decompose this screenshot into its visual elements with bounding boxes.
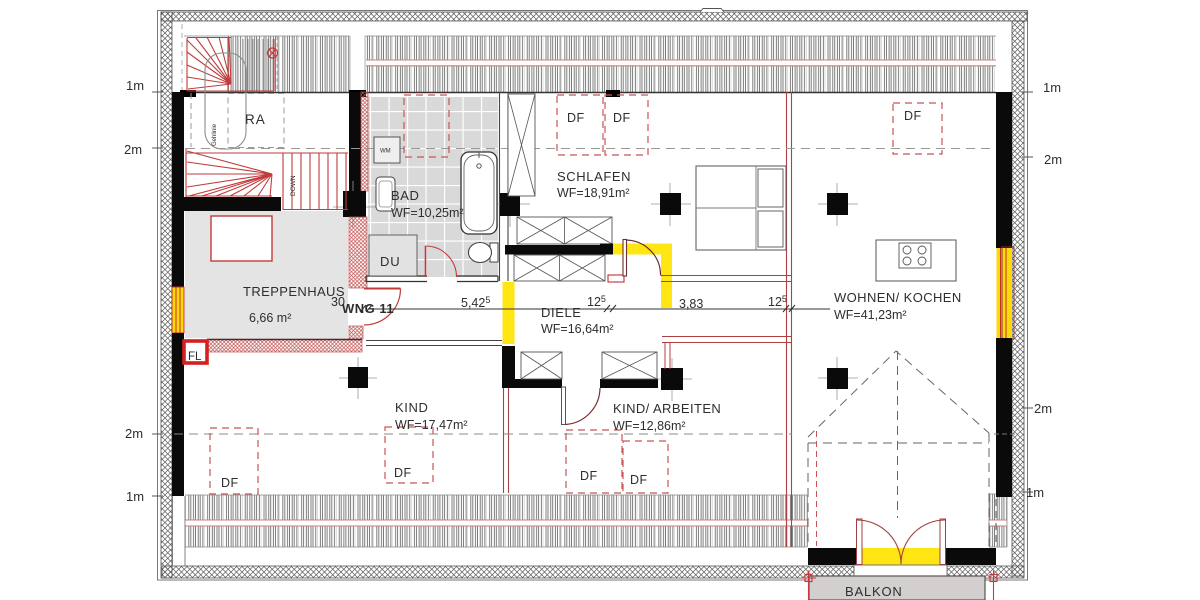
svg-text:DOWN: DOWN <box>290 175 297 196</box>
svg-text:WF=10,25m²: WF=10,25m² <box>391 206 464 220</box>
svg-text:KIND/ ARBEITEN: KIND/ ARBEITEN <box>613 401 721 416</box>
svg-text:WF=12,86m²: WF=12,86m² <box>613 419 686 433</box>
svg-text:DF: DF <box>613 111 631 125</box>
svg-text:1m: 1m <box>126 489 144 504</box>
svg-text:6,66 m²: 6,66 m² <box>249 311 291 325</box>
svg-text:2m: 2m <box>1044 152 1062 167</box>
svg-text:1m: 1m <box>1043 80 1061 95</box>
svg-text:DIELE: DIELE <box>541 305 582 320</box>
svg-text:WM: WM <box>380 149 391 155</box>
svg-text:1m: 1m <box>126 78 144 93</box>
svg-text:2m: 2m <box>124 142 142 157</box>
svg-text:WF=16,64m²: WF=16,64m² <box>541 322 614 336</box>
svg-text:WF=17,47m²: WF=17,47m² <box>395 418 468 432</box>
svg-text:DF: DF <box>221 476 239 490</box>
svg-text:BALKON: BALKON <box>845 584 903 599</box>
svg-text:2m: 2m <box>1034 401 1052 416</box>
svg-text:KIND: KIND <box>395 400 428 415</box>
svg-text:Gehlinie: Gehlinie <box>212 123 218 146</box>
svg-text:WF=18,91m²: WF=18,91m² <box>557 186 630 200</box>
svg-text:DF: DF <box>904 109 922 123</box>
svg-text:DU: DU <box>380 254 400 269</box>
svg-text:1m: 1m <box>1026 485 1044 500</box>
svg-text:2m: 2m <box>125 426 143 441</box>
svg-text:SCHLAFEN: SCHLAFEN <box>557 169 631 184</box>
svg-text:DF: DF <box>394 466 412 480</box>
svg-text:RA: RA <box>245 112 266 127</box>
svg-text:DF: DF <box>580 469 598 483</box>
svg-text:DF: DF <box>630 473 648 487</box>
svg-text:WF=41,23m²: WF=41,23m² <box>834 308 907 322</box>
svg-text:WNG 11: WNG 11 <box>342 301 394 316</box>
svg-text:FL: FL <box>188 351 202 363</box>
svg-text:3,83: 3,83 <box>679 297 703 311</box>
svg-text:WOHNEN/ KOCHEN: WOHNEN/ KOCHEN <box>834 290 962 305</box>
svg-text:DF: DF <box>567 111 585 125</box>
svg-text:BAD: BAD <box>391 188 420 203</box>
svg-text:TREPPENHAUS: TREPPENHAUS <box>243 284 345 299</box>
